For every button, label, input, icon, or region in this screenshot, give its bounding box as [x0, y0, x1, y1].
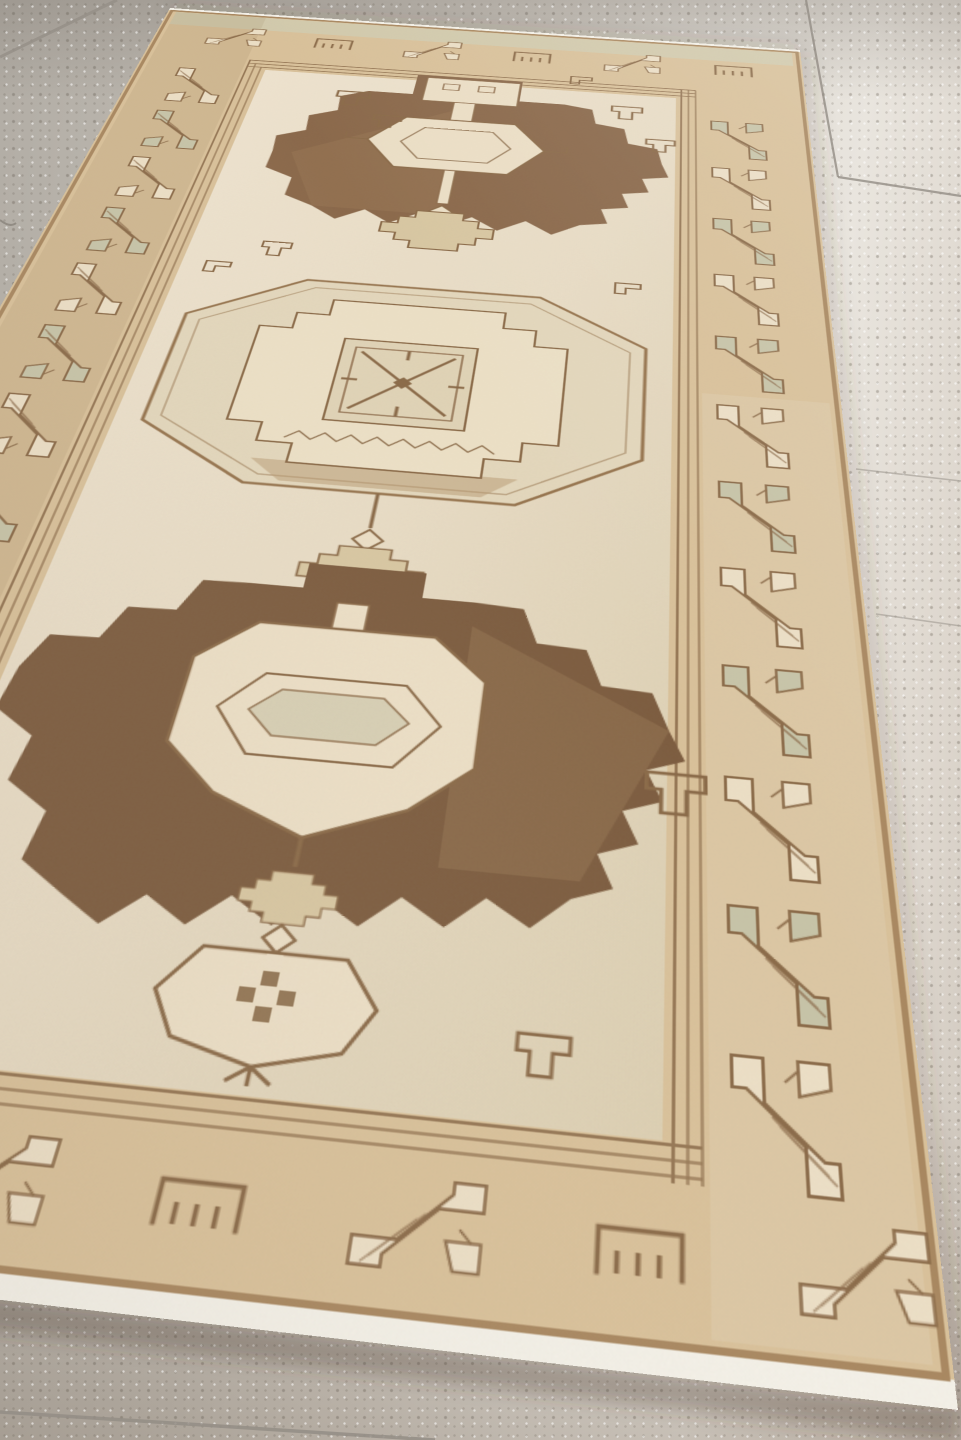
rug-canvas: [0, 8, 958, 1410]
tile-scuff-mark: [0, 220, 16, 225]
grout-line-1: [0, 0, 117, 57]
grout-line-6: [0, 1412, 435, 1440]
grout-line-3: [838, 177, 961, 196]
photo-scene: [0, 0, 961, 1440]
grout-line-4: [856, 469, 961, 481]
grout-line-5: [876, 614, 961, 626]
rug: [0, 8, 958, 1410]
rug-grain-texture: [0, 8, 958, 1410]
